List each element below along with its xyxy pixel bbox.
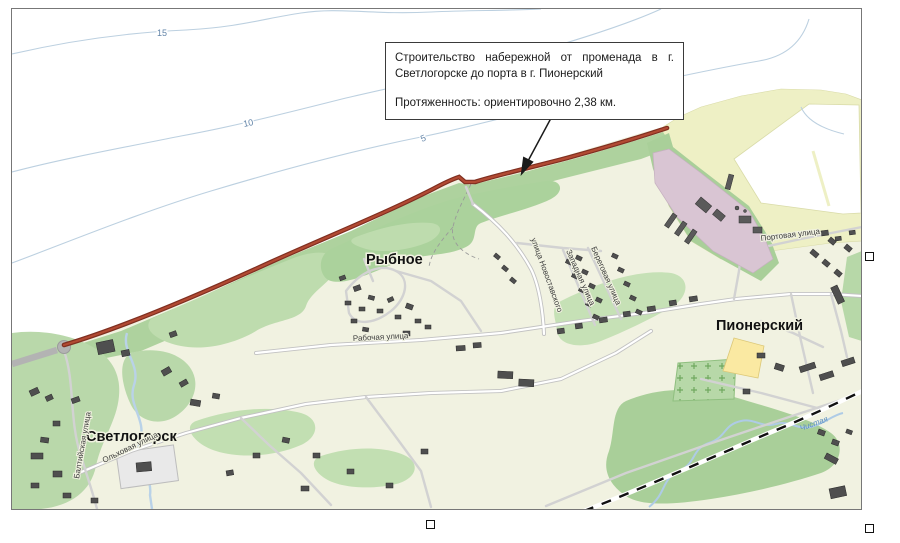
- depth-label-10: 10: [242, 117, 254, 129]
- document-page: 15 10 5 Рыбное Светлогорск Пионерский Ра…: [0, 0, 900, 543]
- annotation-box[interactable]: Строительство набережной от променада в …: [385, 42, 684, 120]
- annotation-line2: Протяженность: ориентировочно 2,38 км.: [395, 95, 674, 111]
- selection-handle-right[interactable]: [865, 252, 874, 261]
- selection-handle-bottom-right[interactable]: [865, 524, 874, 533]
- depth-label-15: 15: [157, 28, 167, 38]
- selection-handle-bottom[interactable]: [426, 520, 435, 529]
- town-label-pionersky: Пионерский: [716, 318, 803, 334]
- annotation-line1: Строительство набережной от променада в …: [395, 50, 674, 82]
- town-label-rybnoe: Рыбное: [366, 252, 423, 268]
- depth-label-5: 5: [419, 133, 427, 144]
